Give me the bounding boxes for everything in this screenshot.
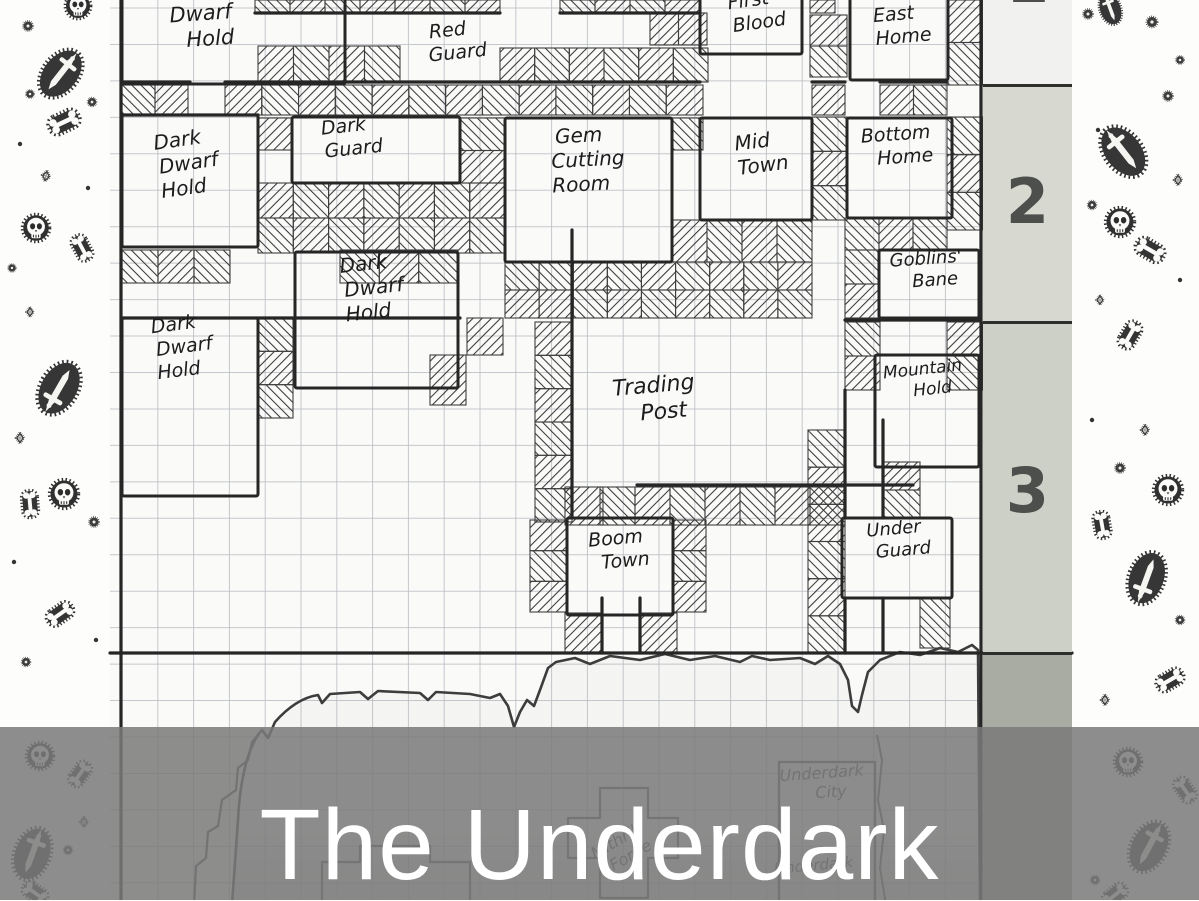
sidebar-section-1: 1	[983, 0, 1072, 85]
svg-text:Town: Town	[600, 548, 650, 574]
gear-icon	[88, 98, 96, 106]
map-title: The Underdark	[260, 796, 940, 900]
gem-icon	[1096, 295, 1103, 305]
svg-text:Cutting: Cutting	[551, 145, 625, 173]
bone-icon	[1133, 236, 1166, 264]
level-number-1: 1	[983, 0, 1072, 17]
gear-icon	[1164, 92, 1173, 101]
level-number-2: 2	[983, 165, 1072, 238]
gem-icon	[1174, 175, 1182, 186]
dot-icon	[18, 142, 22, 146]
svg-text:Dwarf: Dwarf	[169, 0, 236, 27]
bone-icon	[47, 108, 82, 136]
title-overlay: The Underdark	[0, 727, 1199, 900]
svg-text:Room: Room	[552, 170, 611, 197]
sidebar-section-2: 2	[983, 87, 1072, 322]
gem-icon	[26, 307, 33, 317]
gem-icon	[16, 433, 24, 444]
gem-icon	[1141, 425, 1149, 436]
skull-icon	[1155, 477, 1182, 504]
gear-icon	[1176, 56, 1184, 64]
gear-icon	[26, 90, 34, 98]
svg-text:Hold: Hold	[344, 298, 392, 327]
svg-text:East: East	[872, 1, 916, 27]
skull-icon	[23, 215, 49, 241]
svg-text:Hold: Hold	[186, 25, 236, 52]
gear-icon	[22, 658, 30, 666]
sidebar-section-3: 3	[983, 324, 1072, 653]
dot-icon	[94, 638, 98, 642]
bone-icon	[1154, 667, 1185, 694]
dot-icon	[1178, 278, 1182, 282]
gear-icon	[1176, 616, 1184, 624]
dot-icon	[86, 186, 90, 190]
skull-icon	[1107, 209, 1134, 236]
gear-icon	[1116, 464, 1125, 473]
bone-icon	[44, 600, 75, 628]
bone-icon	[70, 233, 95, 262]
gear-icon	[90, 518, 99, 527]
gem-icon	[1101, 695, 1109, 706]
bone-icon	[22, 491, 39, 518]
underdark-map-page: DwarfHoldRedGuardFirstBloodEastHomeDarkD…	[0, 0, 1199, 900]
gear-icon	[24, 22, 33, 31]
gem-icon	[41, 170, 51, 182]
dot-icon	[1096, 128, 1100, 132]
gear-icon	[1084, 10, 1093, 19]
svg-text:Bane: Bane	[912, 268, 959, 292]
gear-icon	[1147, 17, 1157, 27]
dagger-icon	[1122, 548, 1172, 608]
gear-icon	[1088, 201, 1096, 209]
level-number-3: 3	[983, 454, 1072, 527]
svg-text:Home: Home	[876, 144, 934, 170]
svg-text:Gem: Gem	[554, 122, 602, 148]
bone-icon	[1117, 319, 1144, 350]
svg-text:Hold: Hold	[912, 377, 953, 401]
skull-icon	[51, 481, 78, 508]
bone-icon	[1093, 511, 1112, 539]
dagger-icon	[30, 356, 88, 421]
dot-icon	[1090, 418, 1094, 422]
dagger-icon	[31, 43, 90, 105]
dagger-icon	[1095, 0, 1125, 27]
svg-text:Post: Post	[639, 397, 689, 426]
gear-icon	[8, 264, 15, 271]
svg-text:Red: Red	[428, 17, 468, 43]
dot-icon	[12, 560, 16, 564]
skull-icon	[66, 0, 90, 18]
dagger-icon	[1092, 119, 1154, 184]
